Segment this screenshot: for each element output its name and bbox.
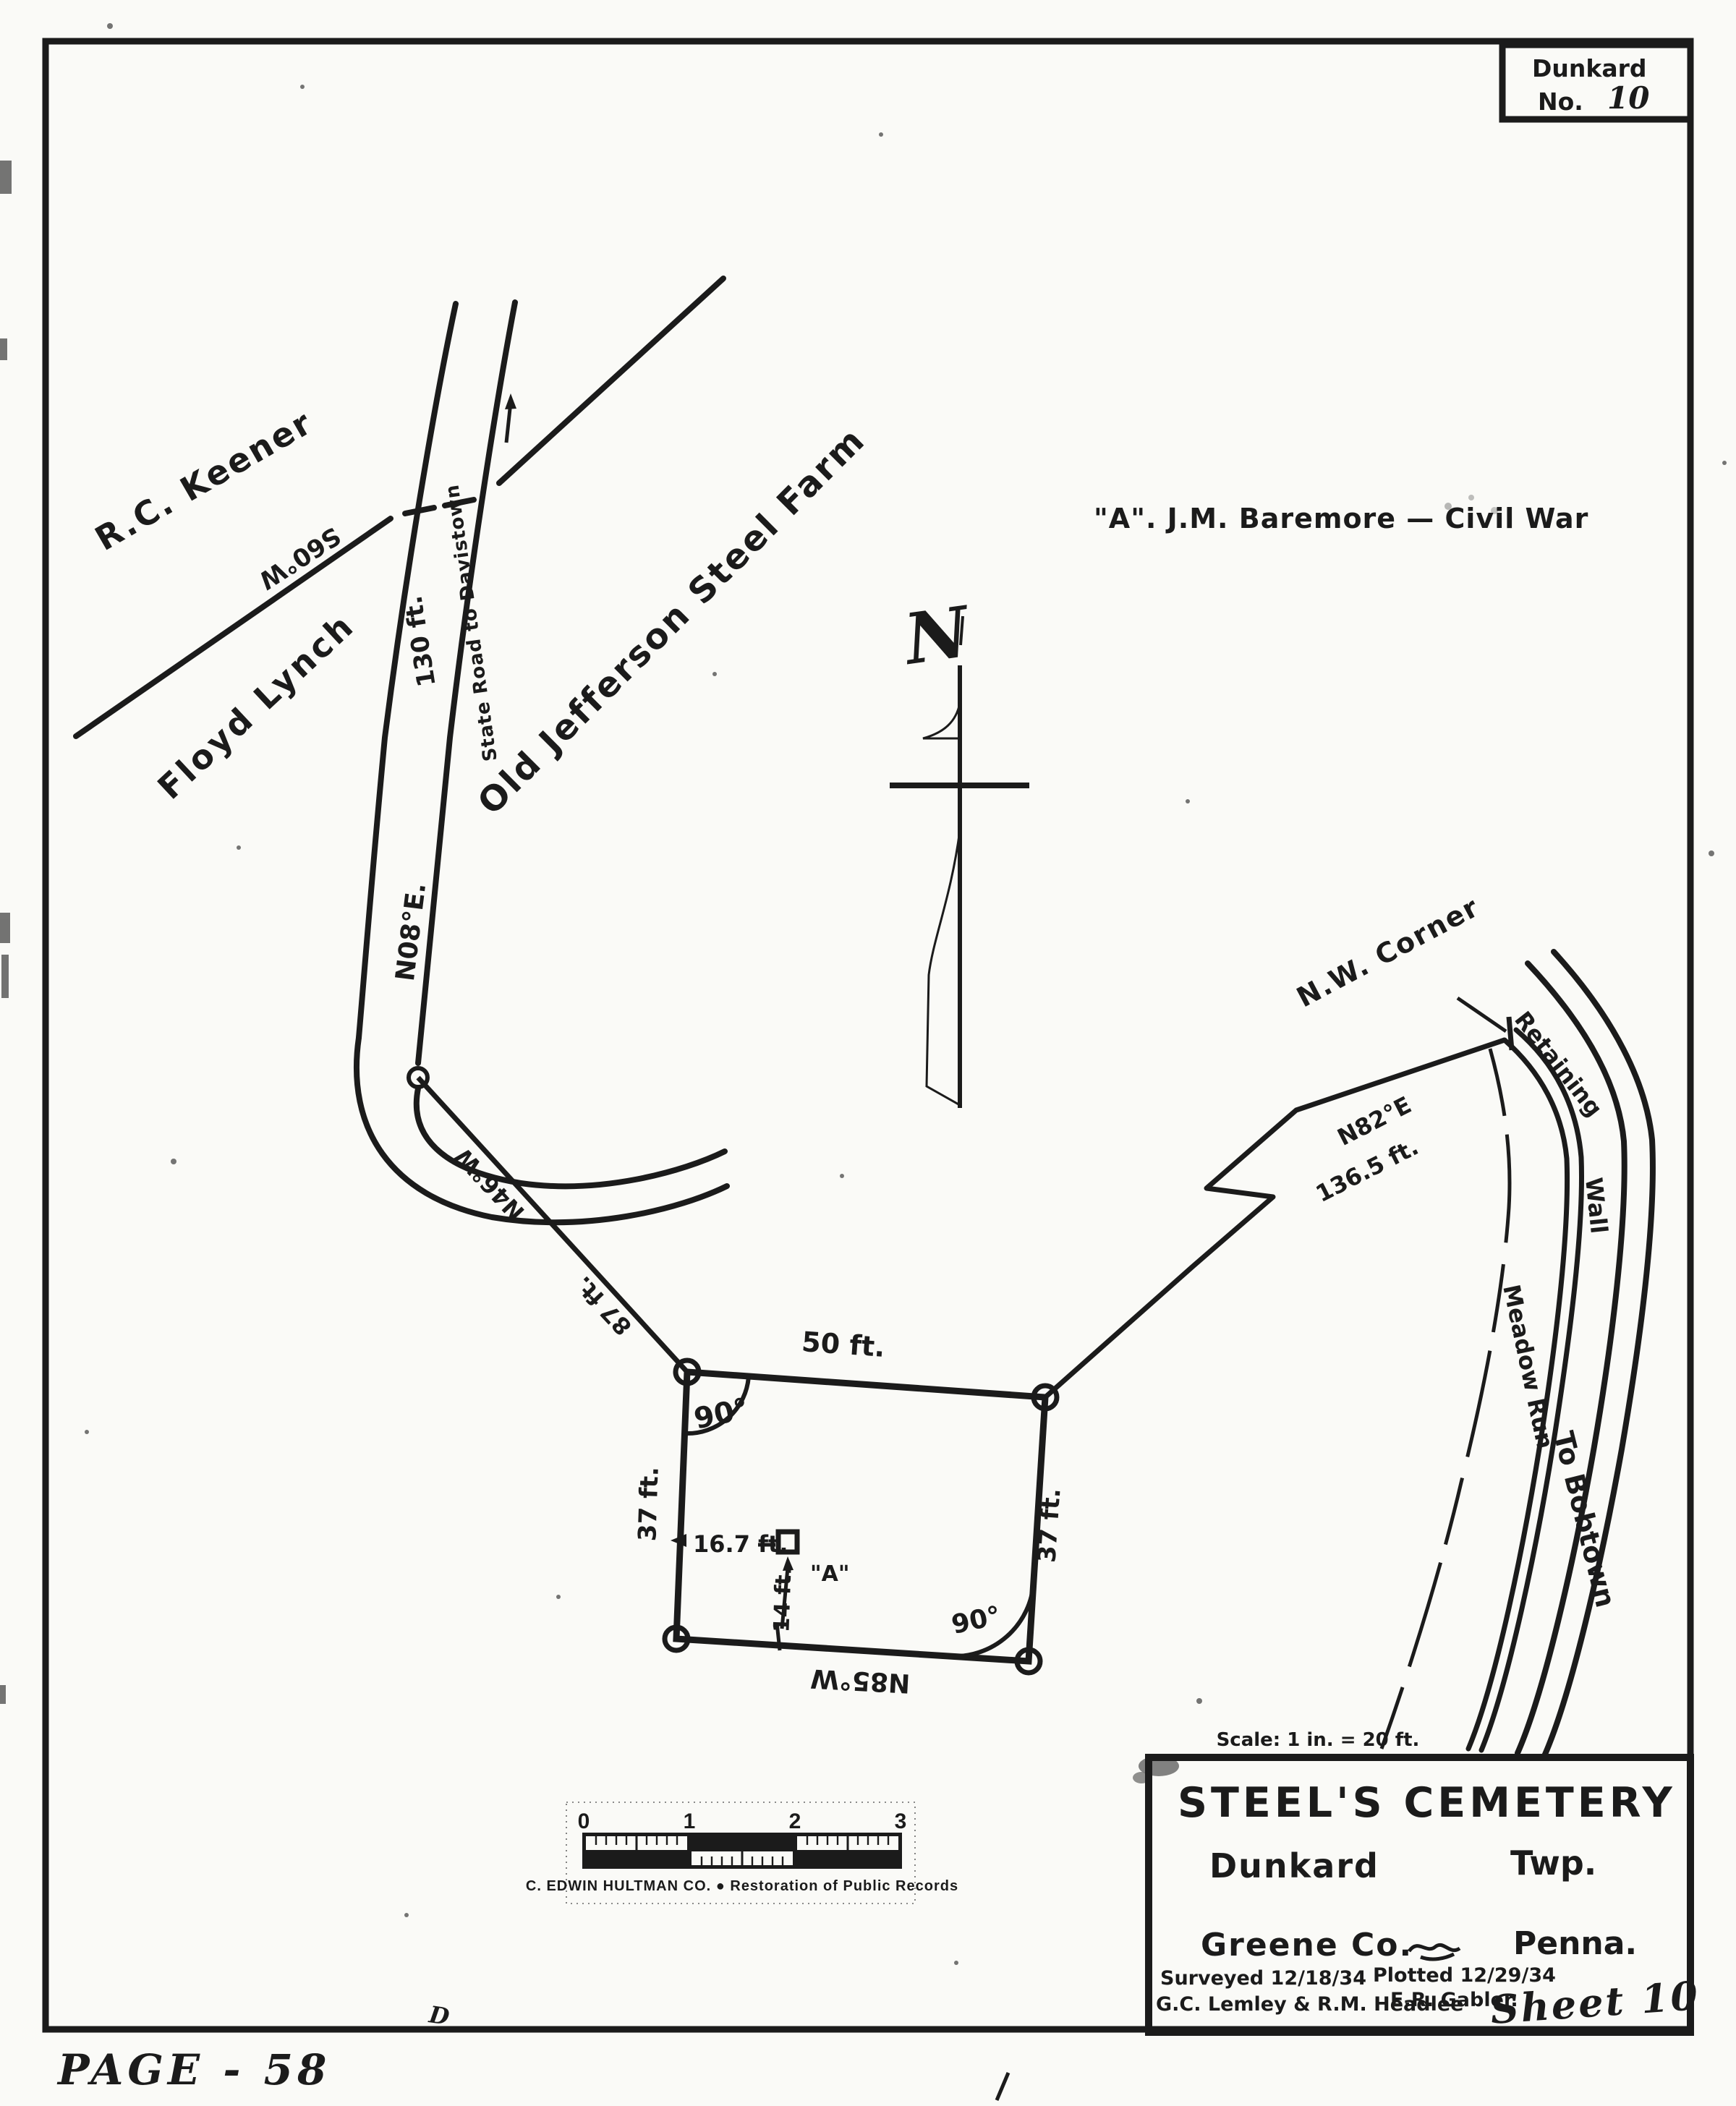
scale-number-1: 1 [684,1809,696,1833]
east-tie-zigzag-line [1045,1040,1505,1397]
retaining-word-label: Retaining [1509,1006,1608,1122]
north-arrow: N [890,590,1029,1108]
farm-label: Old Jefferson Steel Farm [470,419,874,823]
east-side-label: 37 ft. [1032,1487,1066,1564]
title-township-suffix: Twp. [1510,1843,1596,1883]
title-township: Dunkard [1209,1846,1379,1885]
scale-bar: 0 1 2 3 [526,1802,958,1903]
corner-box-no-value: 10 [1607,80,1649,116]
survey-plat-scan: Dunkard No. 10 R.C. Keener S60°W Floyd L… [0,0,1736,2106]
grave-offset-south-label: 14 ft. [769,1566,796,1633]
west-tie-line [418,1078,687,1372]
title-county: Greene Co. [1201,1927,1413,1964]
corner-box-no-label: No. [1538,88,1583,116]
footer-small-mark: D [427,2000,451,2031]
nw-corner-leader-line [1458,998,1506,1031]
grave-note-label: "A". J.M. Baremore — Civil War [1094,503,1588,534]
sheet-border [46,41,1690,2029]
scale-bar-caption: C. EDWIN HULTMAN CO. ● Restoration of Pu… [526,1878,958,1894]
west-side-label: 37 ft. [633,1466,665,1541]
surveyed-date: Surveyed 12/18/34 [1160,1967,1366,1990]
stray-pen-mark [997,2073,1008,2100]
corner-box-township: Dunkard [1532,54,1647,82]
title-state: Penna. [1513,1925,1637,1962]
south-bearing-label: N85°W [809,1663,911,1697]
north-letter: N [898,590,977,681]
scale-number-0: 0 [578,1809,590,1833]
grave-id-label: "A" [810,1561,849,1587]
nw-angle-label: 90° [692,1392,752,1436]
scale-number-2: 2 [789,1809,801,1833]
north-side-label: 50 ft. [801,1326,886,1363]
scale-number-3: 3 [895,1809,907,1833]
map-title: STEEL'S CEMETERY [1178,1779,1676,1827]
page-number: PAGE - 58 [56,2045,331,2094]
grave-offset-west-label: 16.7 ft. [693,1530,788,1558]
flourish-mark [1409,1945,1460,1959]
se-angle-label: 90° [949,1601,1003,1640]
road-direction-arrow [505,393,516,443]
wall-word-label: Wall [1580,1176,1613,1235]
scale-note-label: Scale: 1 in. = 20 ft. [1217,1729,1420,1751]
nw-corner-note-label: N.W. Corner [1291,891,1484,1014]
state-road-distance-label: 130 ft. [399,594,441,688]
east-tie-distance-label: 136.5 ft. [1311,1133,1423,1208]
landowner-lynch-label: Floyd Lynch [150,605,362,807]
landowner-keener-label: R.C. Keener [88,402,320,558]
